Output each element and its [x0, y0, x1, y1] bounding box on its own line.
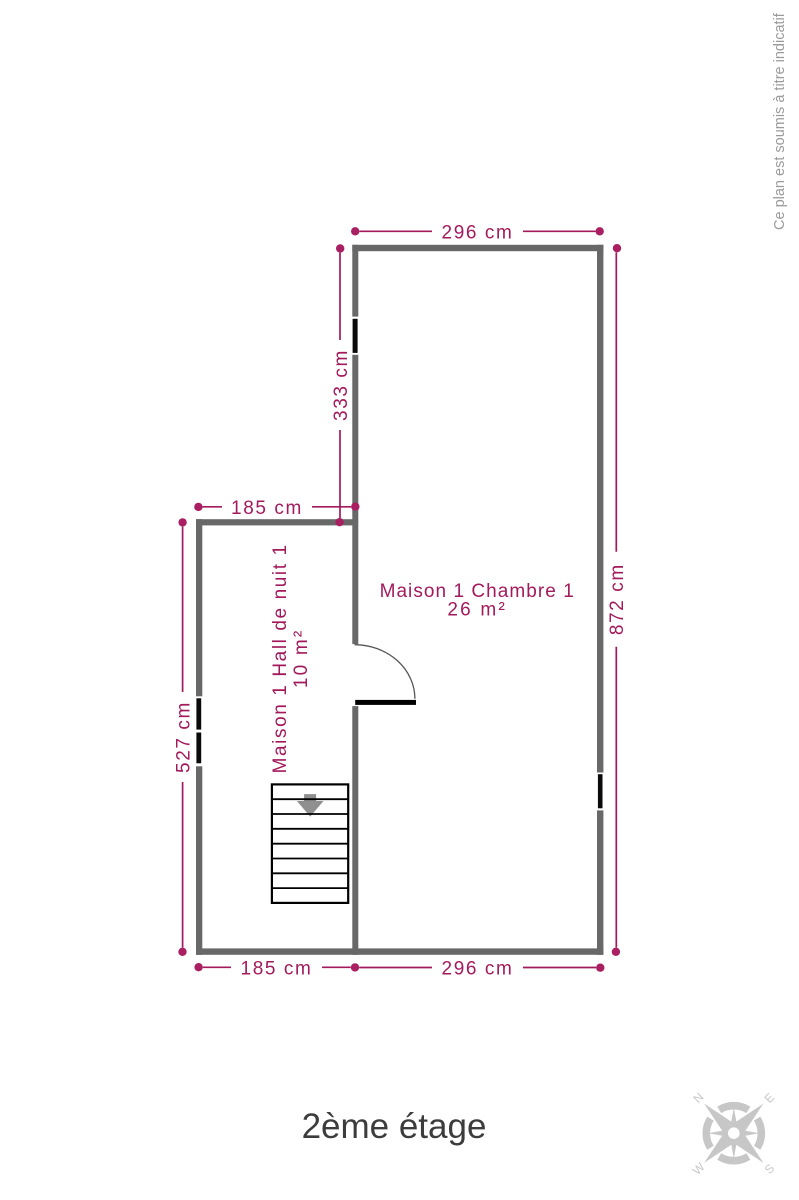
svg-text:Maison 1 Hall de nuit 1: Maison 1 Hall de nuit 1	[270, 543, 291, 773]
svg-text:2ème étage: 2ème étage	[302, 1107, 487, 1146]
svg-text:872 cm: 872 cm	[607, 563, 628, 635]
svg-text:185 cm: 185 cm	[241, 958, 313, 979]
svg-text:185 cm: 185 cm	[231, 498, 303, 519]
svg-text:296 cm: 296 cm	[442, 223, 514, 244]
svg-text:26 m²: 26 m²	[447, 600, 507, 621]
svg-text:296 cm: 296 cm	[442, 959, 514, 980]
svg-text:Ce plan est soumis à titre ind: Ce plan est soumis à titre indicatif	[772, 12, 788, 230]
svg-text:333 cm: 333 cm	[331, 349, 352, 421]
svg-text:10 m²: 10 m²	[291, 629, 312, 689]
svg-text:527 cm: 527 cm	[173, 701, 194, 773]
